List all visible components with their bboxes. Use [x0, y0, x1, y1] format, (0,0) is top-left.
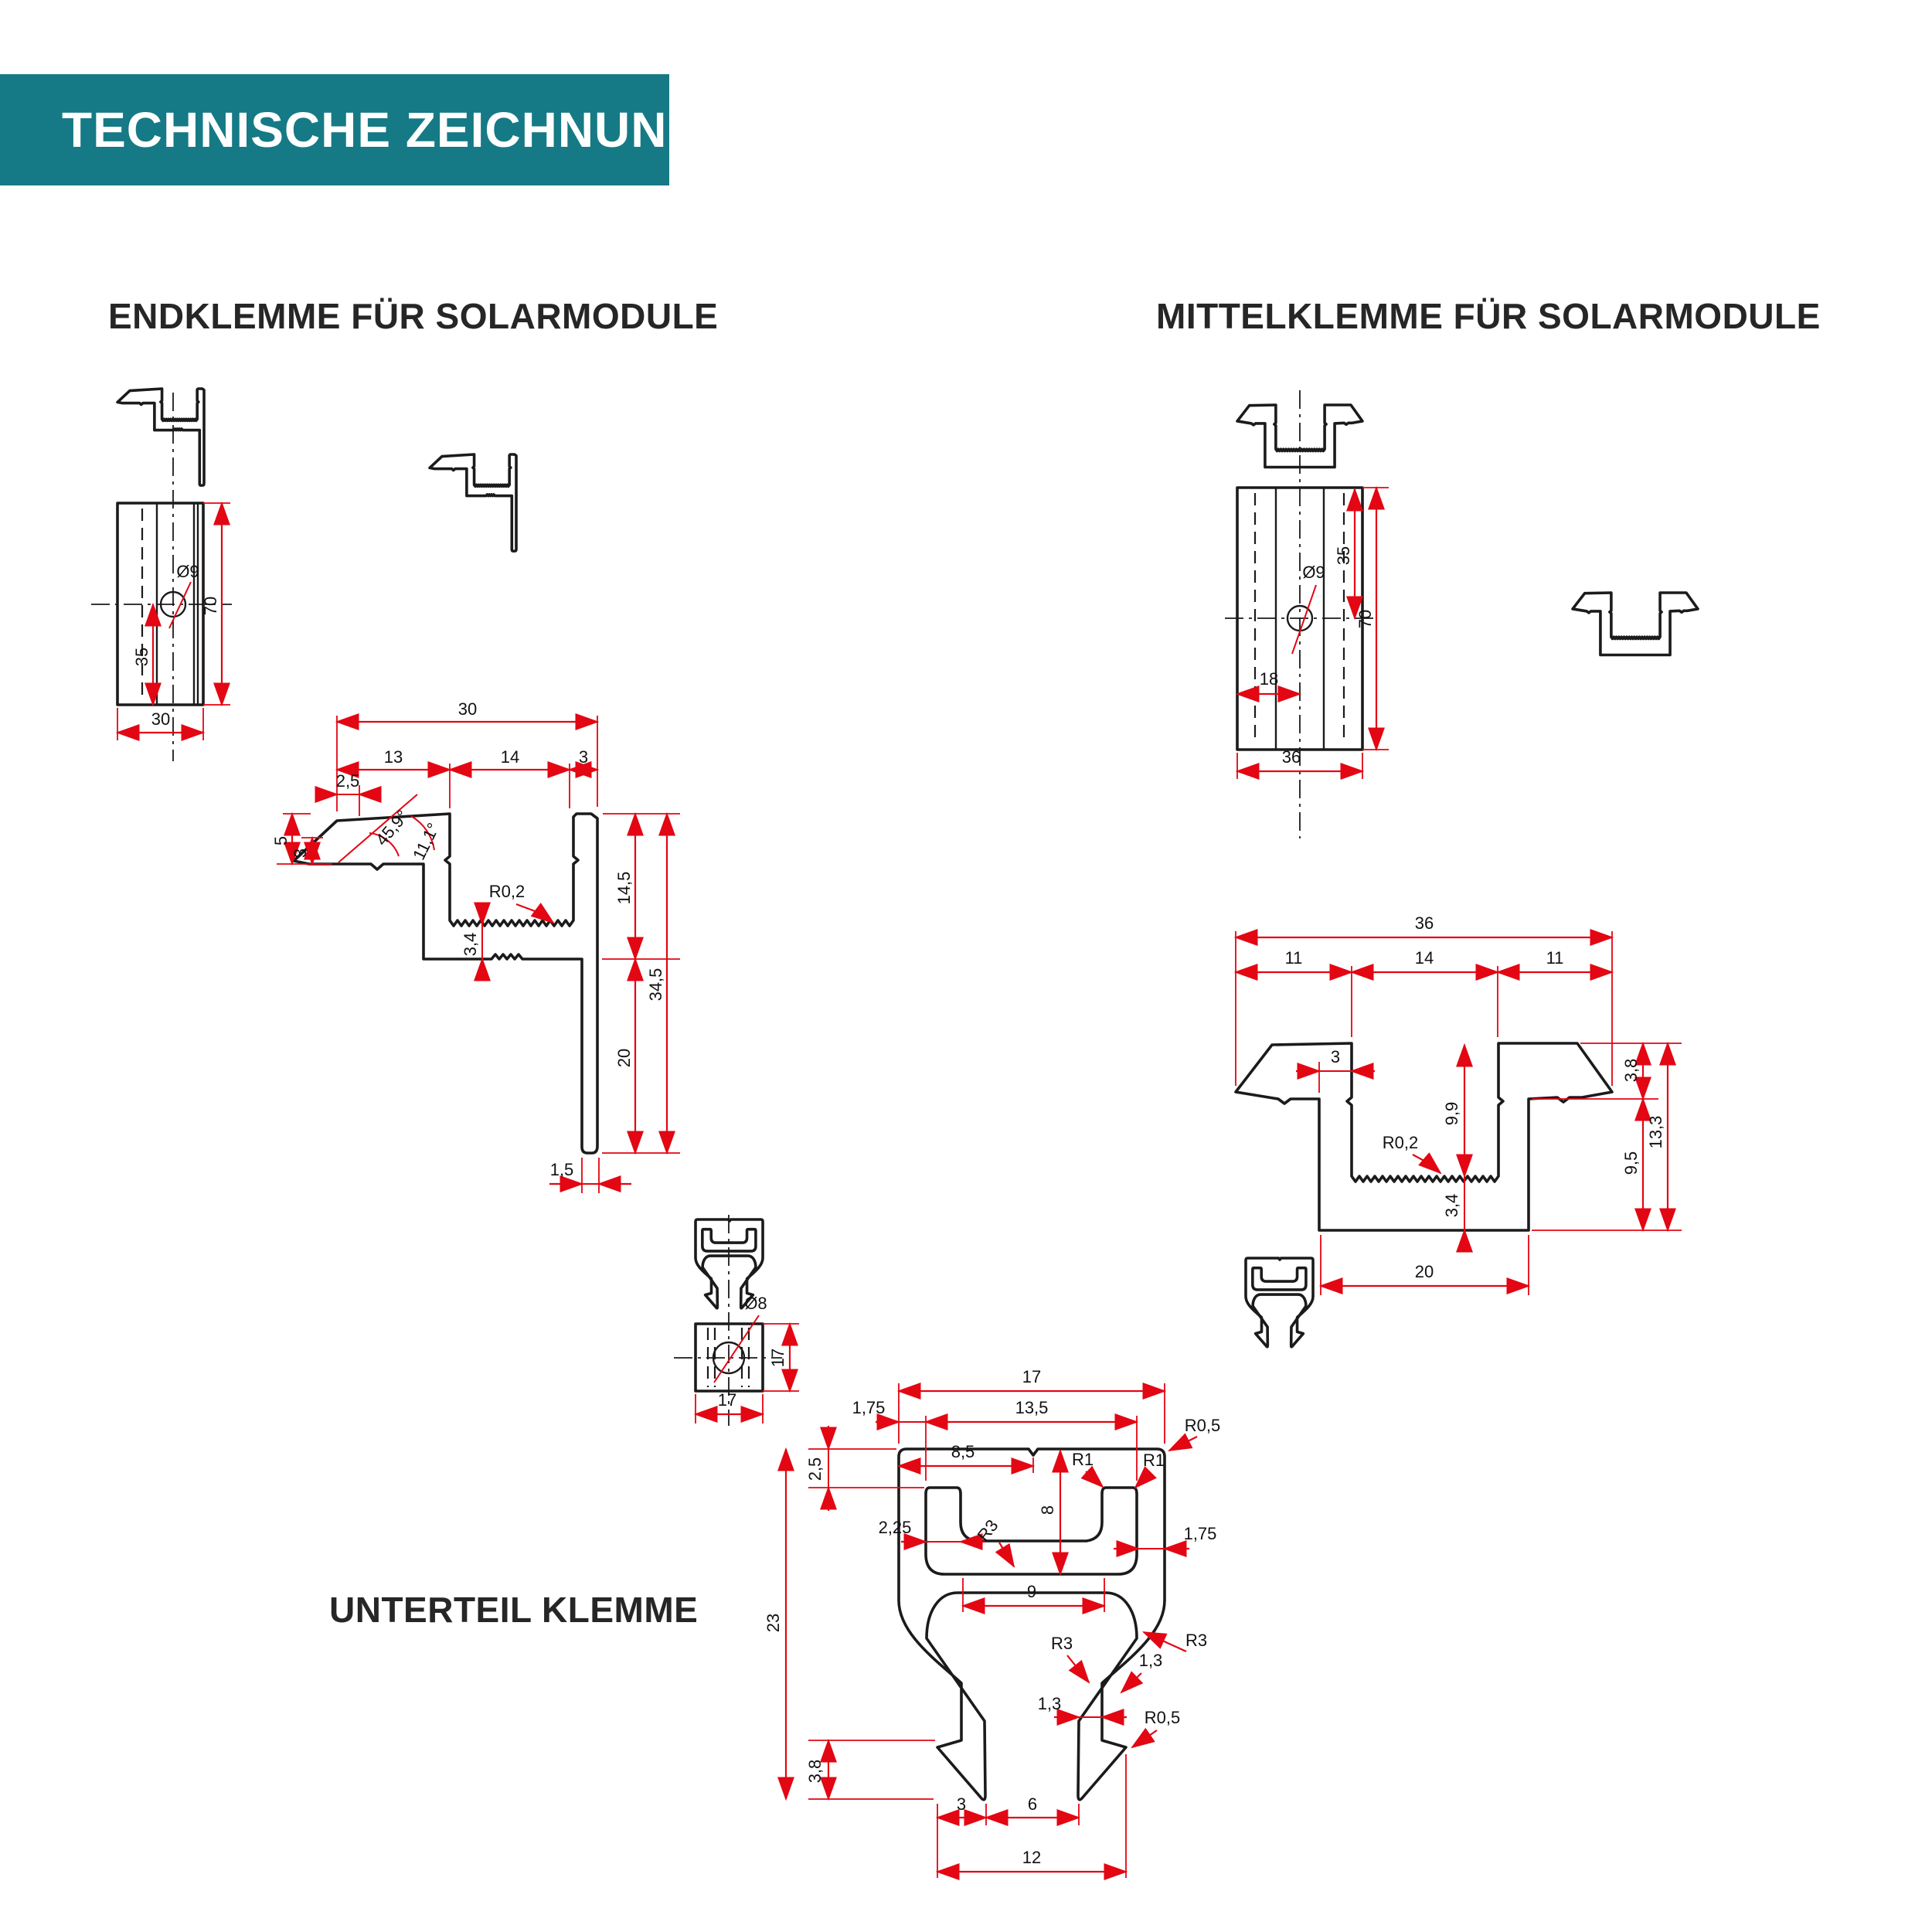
endklemme-side-profile	[117, 389, 204, 485]
dim-label: 1,75	[1184, 1524, 1217, 1543]
radius-label: R0,2	[1383, 1133, 1418, 1152]
mittelklemme-plan-dimensions: Ø9 35 70 18 36	[1237, 488, 1389, 779]
dim-label: 2,5	[805, 1458, 825, 1481]
dim-label: 20	[1415, 1262, 1434, 1281]
dim-label: 35	[1334, 546, 1353, 565]
dim-label: 1,3	[1139, 1651, 1163, 1670]
dim-label: 17	[768, 1349, 787, 1367]
dim-label: 2,25	[879, 1518, 912, 1537]
dim-label: 9	[1027, 1582, 1036, 1601]
dim-label: 11	[1285, 948, 1303, 968]
dim-label: 3	[957, 1794, 966, 1814]
endklemme-side-profile-iso	[430, 454, 516, 551]
dim-label: 1,5	[550, 1160, 574, 1179]
dim-label: 3	[1331, 1047, 1340, 1066]
mittelklemme-detail-profile	[1236, 1043, 1612, 1230]
dim-label: Ø9	[176, 562, 199, 581]
technical-drawing-canvas: Ø9 70 35 30 30 13 14	[0, 0, 1932, 1932]
dim-label: 1,75	[852, 1398, 886, 1417]
dim-label: 17	[1022, 1367, 1041, 1386]
radius-label: R3	[1051, 1634, 1073, 1653]
dim-label: 12	[1022, 1848, 1041, 1867]
dim-label: 36	[1282, 747, 1301, 767]
dim-label: 9,5	[1621, 1151, 1641, 1175]
dim-label: 3	[579, 747, 588, 767]
endklemme-detail-profile	[294, 814, 597, 1153]
dim-label: 13	[384, 747, 403, 767]
dim-label: 6	[1028, 1794, 1037, 1814]
radius-label: R0,5	[1185, 1416, 1220, 1435]
unterteil-side-profile-iso	[1246, 1258, 1313, 1347]
dim-label: 8	[1038, 1505, 1057, 1515]
dim-label: 9,9	[1442, 1102, 1461, 1126]
dim-label: 23	[764, 1614, 783, 1632]
dim-label: 1,3	[1038, 1694, 1062, 1713]
dim-label: 13,5	[1015, 1398, 1049, 1417]
dim-label: 8,5	[951, 1442, 975, 1461]
dim-label: 13,3	[1646, 1116, 1665, 1149]
radius-label: R0,5	[1145, 1708, 1180, 1727]
dim-label: 30	[458, 699, 477, 719]
dim-label: 30	[151, 709, 170, 729]
mittelklemme-side-profile-iso	[1573, 593, 1698, 655]
dim-label: 18	[1260, 669, 1278, 689]
dim-label: 20	[614, 1049, 634, 1067]
dim-label: 14	[1415, 948, 1434, 968]
unterteil-plan-dimensions: Ø8 17 17	[696, 1294, 799, 1423]
dim-label: 3,4	[1442, 1194, 1461, 1218]
dim-label: 3	[291, 849, 310, 858]
dim-label: 70	[1355, 610, 1375, 628]
dim-label: 14	[501, 747, 519, 767]
radius-label: R0,2	[489, 882, 525, 901]
dim-label: 3,4	[461, 933, 480, 957]
unterteil-detail-dimensions: 17 1,75 13,5 R0,5 2,5 8,5 R1 R1 2,25 R3 …	[764, 1367, 1220, 1878]
endklemme-detail-dimensions: 30 13 14 3 2,5 5 3 45,9° 11,1° R0,2 3,4 …	[271, 699, 680, 1193]
radius-label: R1	[1072, 1450, 1094, 1469]
dim-label: 2,5	[336, 771, 360, 791]
dim-label: 5	[271, 836, 291, 845]
mittelklemme-detail-dimensions: 36 11 14 11 3 9,9 R0,2 3,4 3,8 9,5 13,3 …	[1236, 913, 1682, 1295]
dim-label: 36	[1415, 913, 1434, 933]
dim-label: 17	[718, 1390, 736, 1410]
dim-label: 35	[132, 648, 151, 666]
dim-label: 3,8	[805, 1760, 825, 1784]
dim-label: 11	[1546, 948, 1564, 968]
angle-label: 11,1°	[409, 820, 443, 863]
unterteil-detail-profile	[899, 1449, 1165, 1800]
radius-label: R1	[1143, 1451, 1165, 1470]
centerlines	[91, 390, 1376, 1426]
dim-label: 3,8	[1621, 1059, 1641, 1083]
dim-label: 34,5	[646, 968, 665, 1002]
dim-label: 70	[201, 597, 220, 615]
radius-label: R3	[1185, 1631, 1207, 1650]
dim-label: Ø8	[744, 1294, 767, 1313]
dim-label: Ø9	[1302, 563, 1325, 582]
dim-label: 14,5	[614, 872, 634, 905]
